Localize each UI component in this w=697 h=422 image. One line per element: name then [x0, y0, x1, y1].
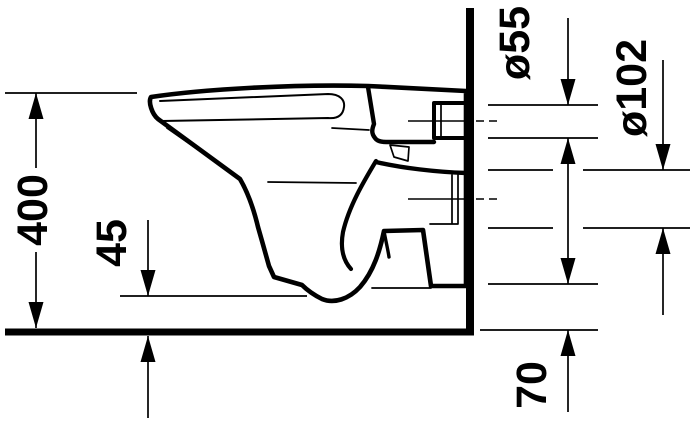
technical-drawing-canvas: 400 45 ø55 ø102 70	[0, 0, 697, 422]
floor-line	[5, 329, 474, 336]
arrowhead	[656, 228, 671, 254]
dim-label-overall-height: 400	[9, 174, 57, 246]
dim-label-bowl-clearance: 45	[88, 219, 136, 267]
dimension-outlet-diameter	[488, 60, 690, 315]
arrowhead	[561, 330, 576, 356]
arrowhead	[561, 79, 576, 105]
dim-label-outlet-clearance: 70	[508, 361, 556, 409]
arrowhead	[656, 144, 671, 170]
arrowhead	[29, 93, 44, 119]
bowl-water-line	[268, 182, 356, 183]
arrowhead	[561, 138, 576, 164]
arrowhead	[561, 258, 576, 284]
foot-left-edge	[384, 231, 389, 257]
dim-label-outlet-diameter: ø102	[608, 39, 656, 137]
toilet-installation-drawing: 400 45 ø55 ø102 70	[0, 0, 697, 422]
arrowhead	[141, 270, 156, 296]
wall-line	[466, 8, 474, 334]
arrowhead	[29, 302, 44, 328]
dim-label-inlet-diameter: ø55	[491, 6, 539, 80]
toilet-body	[150, 86, 466, 301]
arrowhead	[141, 336, 156, 362]
